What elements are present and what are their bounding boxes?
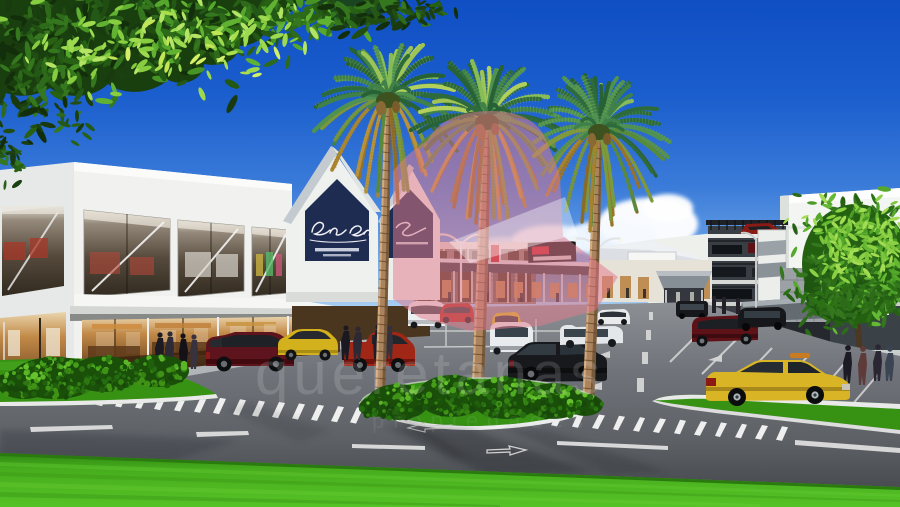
svg-text:propiedades: propiedades	[372, 408, 592, 433]
svg-text:queretanas: queretanas	[255, 340, 605, 407]
